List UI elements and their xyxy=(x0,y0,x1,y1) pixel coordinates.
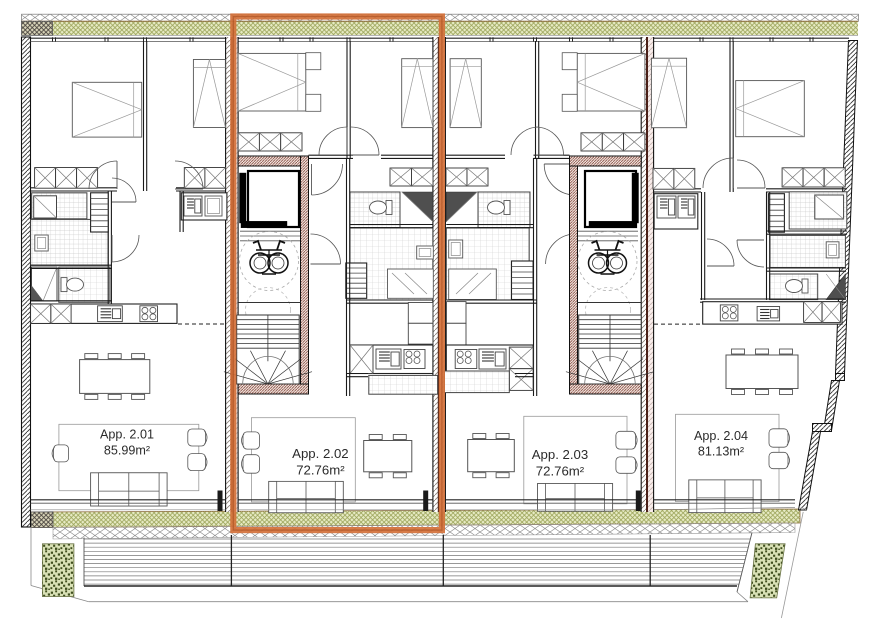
svg-text:App. 2.04: App. 2.04 xyxy=(694,429,748,443)
svg-text:App. 2.01: App. 2.01 xyxy=(100,428,154,442)
svg-text:72.76m²: 72.76m² xyxy=(536,464,585,479)
svg-text:App. 2.02: App. 2.02 xyxy=(292,446,348,461)
svg-text:85.99m²: 85.99m² xyxy=(104,444,150,458)
svg-text:72.76m²: 72.76m² xyxy=(296,463,345,478)
svg-text:App. 2.03: App. 2.03 xyxy=(532,447,588,462)
svg-text:81.13m²: 81.13m² xyxy=(698,445,744,459)
